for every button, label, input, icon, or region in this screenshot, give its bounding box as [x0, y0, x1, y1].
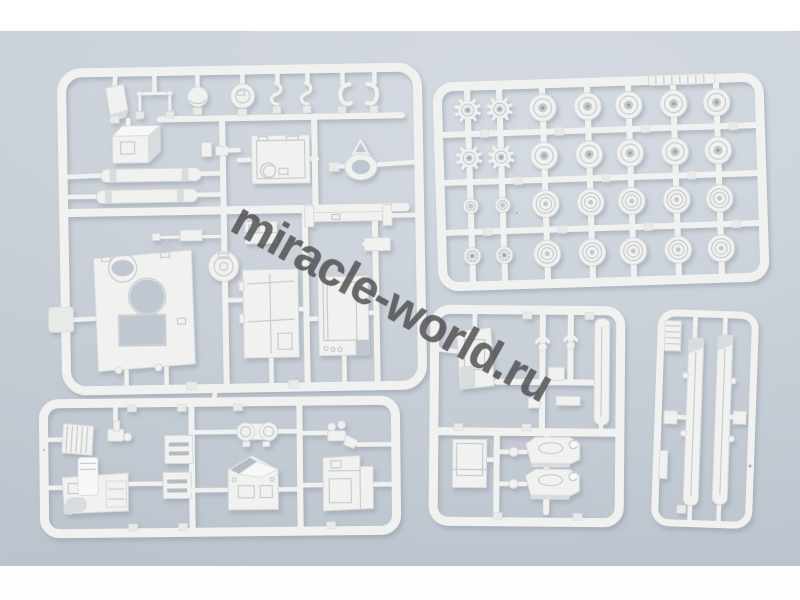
gate-tab — [187, 382, 197, 390]
part-hatch-panel-lower — [452, 439, 496, 487]
photo-model-kit-sprues: miracle-world.ru — [0, 0, 800, 600]
part-muffler — [192, 422, 300, 447]
gate-tab — [127, 405, 136, 412]
part-rear-door-left — [225, 269, 308, 385]
part-cab-roof — [192, 455, 301, 510]
part-donut — [530, 142, 558, 170]
gate-tab — [327, 522, 336, 529]
wheel-grid — [442, 82, 760, 282]
part-sprocket — [489, 145, 513, 170]
part-road — [706, 184, 734, 212]
part-spoked — [464, 247, 482, 265]
part-exhaust-pipe — [66, 188, 223, 204]
part-machine-gun — [152, 229, 222, 249]
part-small-box — [548, 367, 564, 380]
dust-speck — [749, 465, 752, 468]
part-donut — [615, 91, 643, 119]
part-donut — [574, 92, 602, 120]
gate-tab — [179, 523, 188, 530]
sprue-fenders — [654, 312, 755, 525]
gate-tab — [585, 313, 594, 320]
gate-tab — [289, 380, 299, 388]
part-small-bar — [528, 396, 580, 408]
part-ribbed-box — [163, 472, 191, 498]
part-road — [577, 188, 605, 216]
part-access-panel — [245, 221, 277, 244]
part-towing-hook — [337, 71, 351, 113]
part-road — [618, 187, 646, 215]
part-clamp — [271, 72, 281, 113]
part-road — [533, 240, 561, 268]
part-stowage-bin-small — [105, 75, 128, 123]
part-road — [578, 238, 606, 266]
dust-speck — [516, 212, 518, 214]
part-dome-hatch — [187, 74, 208, 115]
part-road — [663, 186, 691, 214]
gate-tab — [677, 505, 686, 513]
part-round-hatch — [230, 73, 255, 116]
part-small-panel — [364, 237, 390, 250]
part-towing-hook — [366, 71, 378, 113]
part-spoked — [495, 246, 513, 264]
part-donut — [575, 140, 603, 168]
part-donut — [616, 139, 644, 167]
part-sprocket — [456, 98, 480, 123]
part-donut — [703, 88, 731, 116]
part-hub — [495, 197, 510, 212]
sprues-scene — [0, 0, 800, 600]
dust-speck — [43, 449, 45, 451]
part-road — [707, 234, 735, 262]
sprue-hatch-and-turrets — [433, 309, 621, 523]
gate-tab — [454, 423, 463, 430]
gate-tab — [177, 404, 186, 411]
part-grab-handle-frame — [135, 74, 174, 119]
part-side-skirt-strip — [594, 319, 610, 433]
part-hub — [463, 198, 478, 213]
gate-tab — [233, 404, 242, 411]
part-road — [619, 237, 647, 265]
part-stowage-box — [112, 119, 161, 163]
part-small-fittings — [300, 420, 394, 449]
gate-tab — [573, 513, 582, 520]
part-track-strip — [649, 73, 715, 85]
part-cupola-ring — [208, 251, 239, 282]
part-donut — [661, 138, 689, 166]
part-hatch-panel-upper — [437, 312, 495, 389]
part-clamp — [301, 72, 311, 113]
part-bracket-right — [730, 411, 746, 425]
part-engine-deck — [238, 135, 317, 184]
part-towing-ring — [328, 137, 417, 181]
part-stowage-tray — [300, 455, 395, 511]
part-hull-top-plate — [67, 250, 195, 389]
sprue-hull-and-hatches — [44, 67, 423, 392]
gate-tab — [129, 524, 138, 531]
part-mg-turret — [497, 437, 580, 468]
sprue-connector — [213, 389, 216, 403]
gate-tab — [48, 307, 73, 332]
part-sprocket — [457, 146, 481, 171]
part-ribbed-box — [165, 435, 193, 463]
part-rear-door-right — [306, 276, 378, 384]
part-tow-shackle — [537, 334, 549, 351]
part-donut — [529, 94, 557, 122]
gate-tab — [493, 513, 502, 520]
part-exhaust-pipe — [66, 167, 223, 183]
sprue-engine-parts — [43, 400, 396, 534]
part-bracket-left — [659, 410, 686, 479]
part-donut — [704, 136, 732, 164]
gate-tab — [523, 312, 532, 319]
part-road — [532, 190, 560, 218]
part-ribbed-plate — [664, 321, 681, 352]
part-donut — [660, 90, 688, 118]
sprue-road-wheels — [437, 72, 765, 287]
part-sprocket — [488, 97, 512, 122]
part-radiator-grille — [47, 423, 94, 455]
part-road — [664, 236, 692, 264]
gate-tab — [522, 424, 531, 431]
